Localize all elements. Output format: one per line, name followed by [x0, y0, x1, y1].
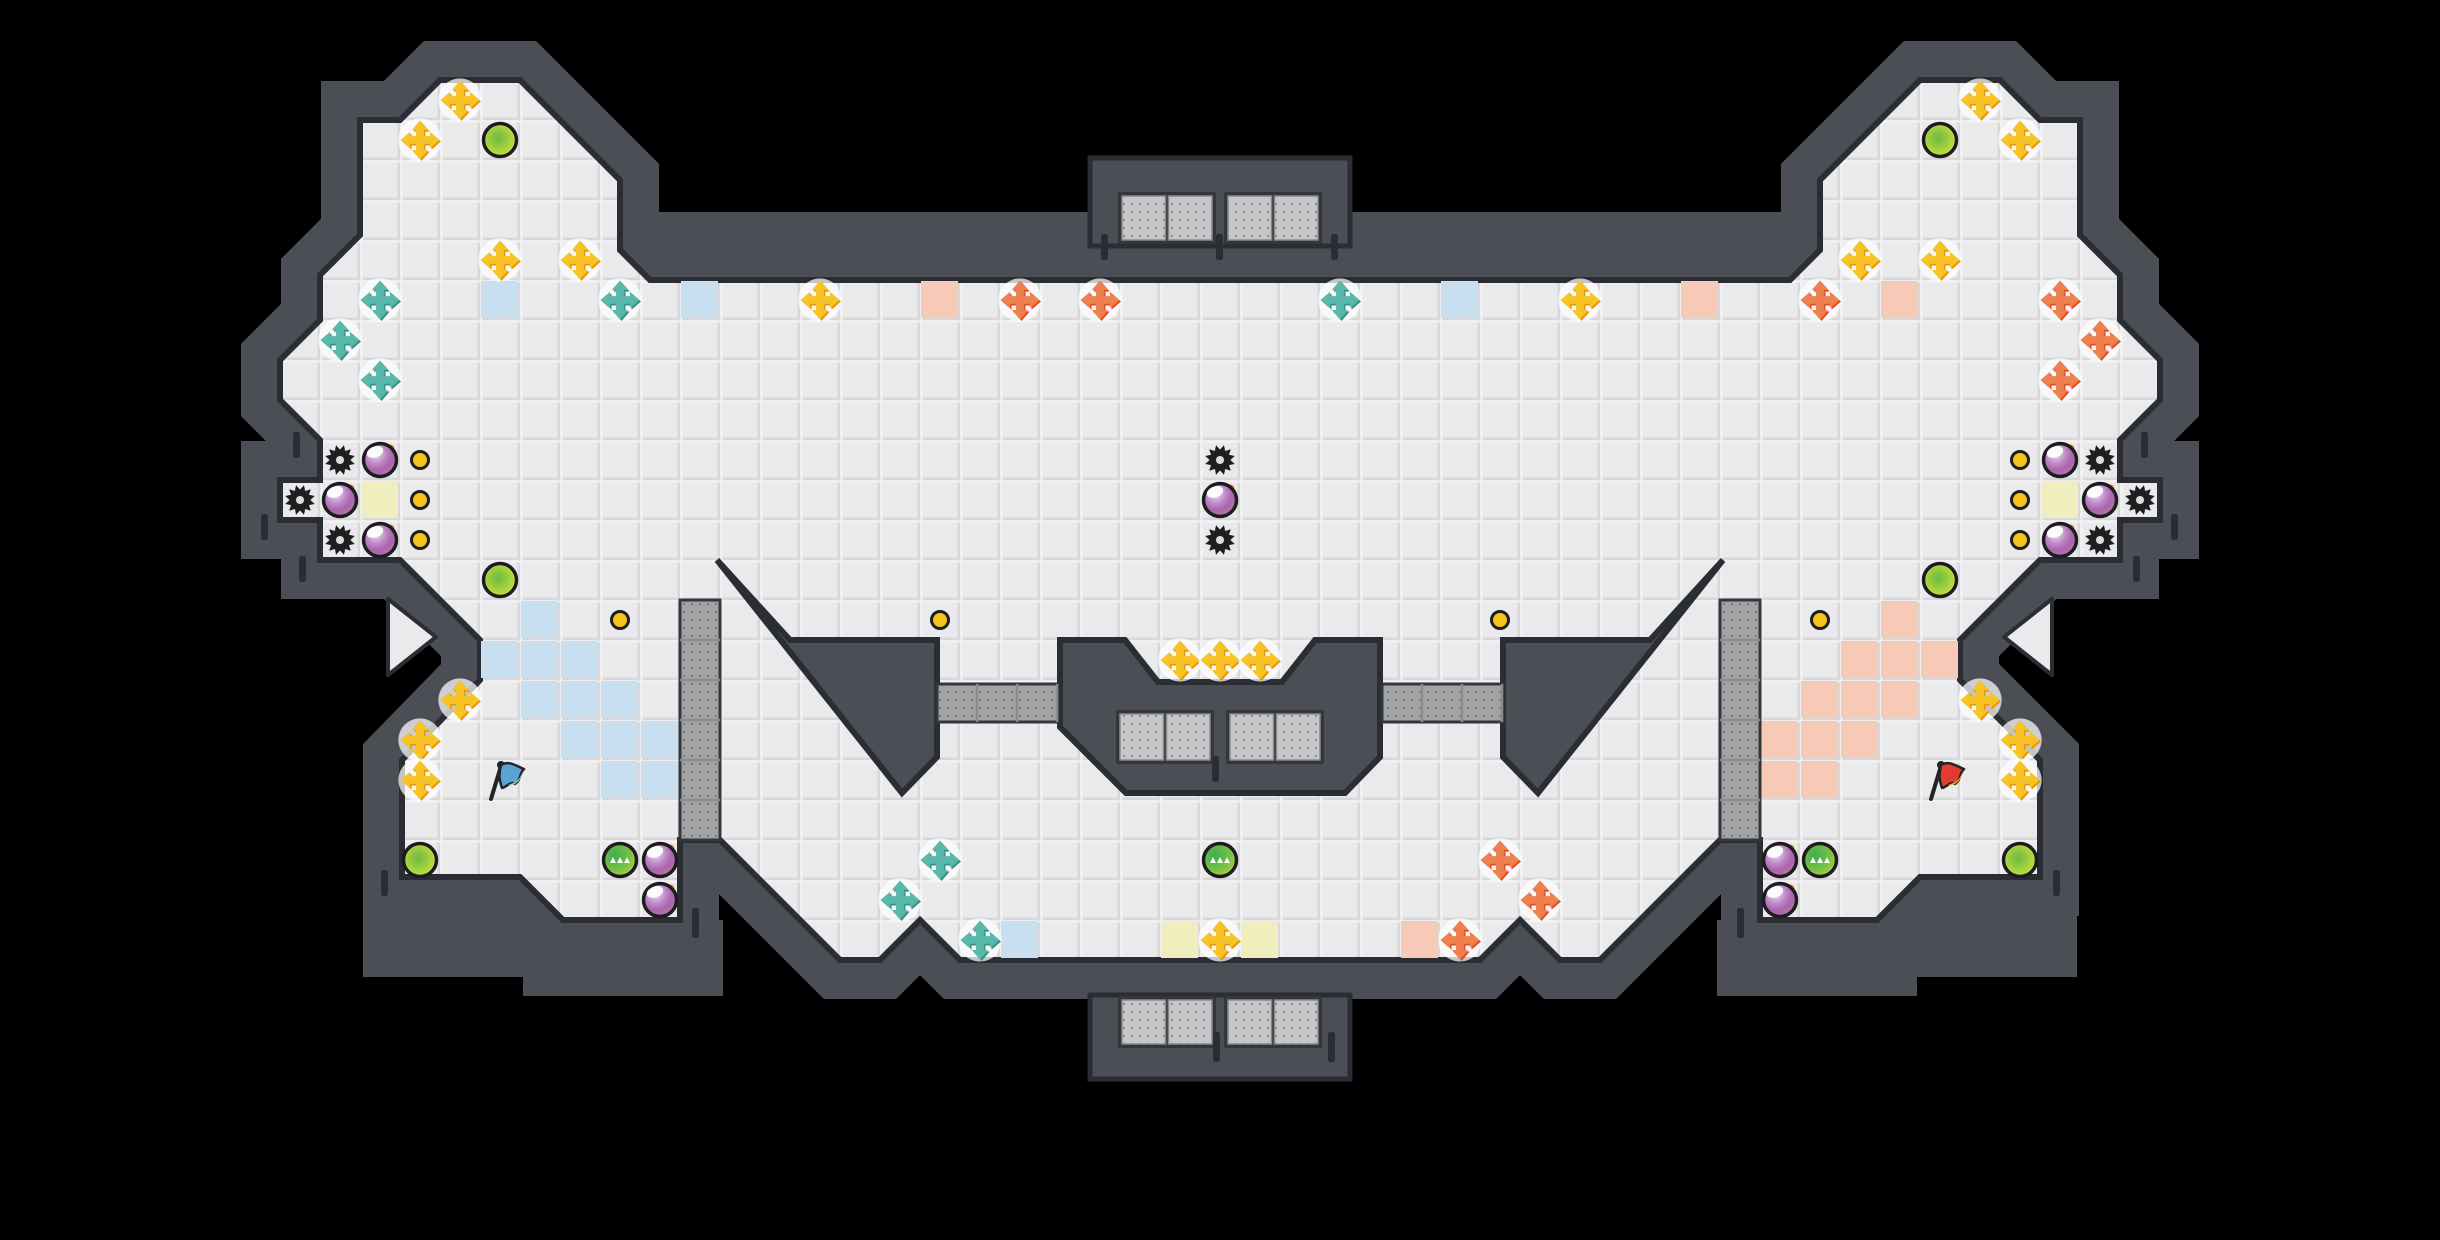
- blue-tile: [481, 281, 518, 318]
- pickup-cross-yellow-icon[interactable]: [478, 238, 521, 281]
- pickup-cross-orange-icon[interactable]: [2038, 358, 2081, 401]
- button-icon[interactable]: [412, 492, 429, 509]
- blue-tile: [561, 641, 598, 678]
- pickup-cross-teal-icon[interactable]: [958, 918, 1001, 961]
- powerup-green-chevrons: [610, 857, 630, 863]
- bomb-icon[interactable]: [2084, 484, 2117, 517]
- wall-seam-tick: [381, 870, 388, 896]
- powerup-green-icon[interactable]: [1204, 844, 1237, 877]
- wall-seam-tick: [261, 514, 268, 540]
- pickup-cross-yellow-icon[interactable]: [438, 678, 481, 721]
- pickup-cross-yellow-icon[interactable]: [1958, 78, 2001, 121]
- blue-tile: [1441, 281, 1478, 318]
- grate-strip: [937, 684, 1058, 722]
- salmon-tile: [1881, 681, 1918, 718]
- bomb-icon[interactable]: [644, 844, 677, 877]
- wall-seam-tick: [1101, 234, 1108, 260]
- grate-panel: [1122, 1000, 1166, 1044]
- pickup-cross-yellow-icon[interactable]: [798, 278, 841, 321]
- pale-yellow-tile: [2041, 481, 2078, 518]
- blue-tile: [481, 641, 518, 678]
- button-icon[interactable]: [932, 612, 949, 629]
- bomb-icon[interactable]: [1764, 844, 1797, 877]
- grate-panel: [1169, 1000, 1213, 1044]
- grate-panel: [1275, 196, 1319, 240]
- powerup-green-icon[interactable]: [604, 844, 637, 877]
- spike-gear-icon[interactable]: [2125, 485, 2155, 515]
- salmon-tile: [1801, 761, 1838, 798]
- salmon-tile: [1841, 641, 1878, 678]
- blue-tile: [521, 681, 558, 718]
- grate-panel: [1167, 714, 1211, 760]
- pickup-cross-yellow-icon[interactable]: [1558, 278, 1601, 321]
- powerup-lime-body: [484, 564, 517, 597]
- bomb-icon[interactable]: [364, 444, 397, 477]
- wall-seam-tick: [1331, 234, 1338, 260]
- blue-tile: [561, 681, 598, 718]
- pickup-cross-orange-icon[interactable]: [1078, 278, 1121, 321]
- pickup-cross-orange-icon[interactable]: [998, 278, 1041, 321]
- blue-tile: [641, 761, 678, 798]
- grate-panel: [1120, 714, 1164, 760]
- pickup-cross-yellow-icon[interactable]: [1198, 638, 1241, 681]
- powerup-lime-icon[interactable]: [1924, 564, 1957, 597]
- pale-yellow-tile: [361, 481, 398, 518]
- wall-seam-tick: [2053, 870, 2060, 896]
- pickup-cross-yellow-icon[interactable]: [1158, 638, 1201, 681]
- pickup-cross-orange-icon[interactable]: [1518, 878, 1561, 921]
- powerup-green-icon[interactable]: [1804, 844, 1837, 877]
- wall-seam-tick: [2141, 432, 2148, 458]
- powerup-lime-icon[interactable]: [2004, 844, 2037, 877]
- pickup-cross-yellow-icon[interactable]: [1198, 918, 1241, 961]
- salmon-tile: [1881, 281, 1918, 318]
- pickup-cross-teal-icon[interactable]: [1318, 278, 1361, 321]
- pickup-cross-yellow-icon[interactable]: [1958, 678, 2001, 721]
- pickup-cross-orange-icon[interactable]: [1798, 278, 1841, 321]
- wall-seam-tick: [1737, 908, 1744, 938]
- bomb-icon[interactable]: [644, 884, 677, 917]
- button-icon[interactable]: [1812, 612, 1829, 629]
- blue-tile: [521, 601, 558, 638]
- powerup-lime-body: [1924, 564, 1957, 597]
- bomb-icon[interactable]: [2044, 524, 2077, 557]
- salmon-tile: [921, 281, 958, 318]
- pickup-cross-teal-icon[interactable]: [598, 278, 641, 321]
- blue-tile: [601, 681, 638, 718]
- pickup-cross-yellow-icon[interactable]: [1838, 238, 1881, 281]
- spike-gear-icon[interactable]: [325, 525, 355, 555]
- wall-seam-tick: [2171, 514, 2178, 540]
- grate-panel: [1122, 196, 1166, 240]
- wall-seam-tick: [1328, 1032, 1335, 1062]
- grate-panel: [1169, 196, 1213, 240]
- blue-tile: [521, 641, 558, 678]
- wall-seam-tick: [293, 432, 300, 458]
- pickup-cross-yellow-icon[interactable]: [1998, 758, 2041, 801]
- grate-panel: [1230, 714, 1274, 760]
- blue-tile: [601, 721, 638, 758]
- pickup-cross-yellow-icon[interactable]: [398, 718, 441, 761]
- wall-seam-tick: [1212, 756, 1219, 782]
- wall-seam-tick: [1213, 1032, 1220, 1062]
- powerup-lime-body: [404, 844, 437, 877]
- button-icon[interactable]: [2012, 452, 2029, 469]
- pickup-cross-orange-icon[interactable]: [1478, 838, 1521, 881]
- spike-gear-icon[interactable]: [285, 485, 315, 515]
- salmon-tile: [1761, 721, 1798, 758]
- pickup-cross-orange-icon[interactable]: [2038, 278, 2081, 321]
- salmon-tile: [1881, 641, 1918, 678]
- pickup-cross-yellow-icon[interactable]: [1998, 718, 2041, 761]
- spike-gear-icon[interactable]: [2085, 525, 2115, 555]
- wall-seam-tick: [1216, 234, 1223, 260]
- bomb-icon[interactable]: [1764, 884, 1797, 917]
- button-icon[interactable]: [412, 452, 429, 469]
- salmon-tile: [1801, 681, 1838, 718]
- button-icon[interactable]: [1492, 612, 1509, 629]
- game-map-stage: [0, 0, 2440, 1240]
- map-canvas: [0, 0, 2440, 1240]
- powerup-lime-body: [2004, 844, 2037, 877]
- powerup-lime-icon[interactable]: [484, 564, 517, 597]
- button-icon[interactable]: [412, 532, 429, 549]
- salmon-tile: [1841, 721, 1878, 758]
- bomb-icon[interactable]: [2044, 444, 2077, 477]
- bomb-icon[interactable]: [324, 484, 357, 517]
- spike-gear-icon[interactable]: [1205, 525, 1235, 555]
- pickup-cross-yellow-icon[interactable]: [438, 78, 481, 121]
- wall-block: [1717, 920, 1917, 996]
- button-icon[interactable]: [2012, 492, 2029, 509]
- salmon-tile: [1401, 921, 1438, 958]
- pale-yellow-tile: [1161, 921, 1198, 958]
- grate-panel: [1275, 1000, 1319, 1044]
- powerup-green-chevrons: [1810, 857, 1830, 863]
- blue-tile: [641, 721, 678, 758]
- pickup-cross-teal-icon[interactable]: [918, 838, 961, 881]
- button-icon[interactable]: [612, 612, 629, 629]
- grate-strip: [1382, 684, 1503, 722]
- pickup-cross-orange-icon[interactable]: [2078, 318, 2121, 361]
- pickup-cross-yellow-icon[interactable]: [398, 758, 441, 801]
- powerup-lime-icon[interactable]: [404, 844, 437, 877]
- salmon-tile: [1841, 681, 1878, 718]
- wall-seam-tick: [299, 556, 306, 582]
- spike-gear-icon[interactable]: [2085, 445, 2115, 475]
- wall-seam-tick: [692, 908, 699, 938]
- powerup-lime-body: [1924, 124, 1957, 157]
- bomb-icon[interactable]: [1204, 484, 1237, 517]
- pickup-cross-yellow-icon[interactable]: [1918, 238, 1961, 281]
- pickup-cross-yellow-icon[interactable]: [1238, 638, 1281, 681]
- salmon-tile: [1921, 641, 1958, 678]
- wall-seam-tick: [2133, 556, 2140, 582]
- salmon-tile: [1881, 601, 1918, 638]
- pickup-cross-teal-icon[interactable]: [318, 318, 361, 361]
- blue-tile: [601, 761, 638, 798]
- blue-tile: [561, 721, 598, 758]
- grate-panel: [1277, 714, 1321, 760]
- bomb-icon[interactable]: [364, 524, 397, 557]
- spike-gear-icon[interactable]: [325, 445, 355, 475]
- pickup-cross-yellow-icon[interactable]: [558, 238, 601, 281]
- salmon-tile: [1761, 761, 1798, 798]
- blue-tile: [1001, 921, 1038, 958]
- pickup-cross-teal-icon[interactable]: [878, 878, 921, 921]
- powerup-lime-icon[interactable]: [1924, 124, 1957, 157]
- grate-panel: [1228, 1000, 1272, 1044]
- pickup-cross-yellow-icon[interactable]: [1998, 118, 2041, 161]
- salmon-tile: [1681, 281, 1718, 318]
- grate-panel: [1228, 196, 1272, 240]
- blue-tile: [681, 281, 718, 318]
- pickup-cross-yellow-icon[interactable]: [398, 118, 441, 161]
- salmon-tile: [1801, 721, 1838, 758]
- pickup-cross-orange-icon[interactable]: [1438, 918, 1481, 961]
- pickup-cross-teal-icon[interactable]: [358, 358, 401, 401]
- pickup-cross-teal-icon[interactable]: [358, 278, 401, 321]
- powerup-green-chevrons: [1210, 857, 1230, 863]
- powerup-lime-body: [484, 124, 517, 157]
- pale-yellow-tile: [1241, 921, 1278, 958]
- button-icon[interactable]: [2012, 532, 2029, 549]
- powerup-lime-icon[interactable]: [484, 124, 517, 157]
- spike-gear-icon[interactable]: [1205, 445, 1235, 475]
